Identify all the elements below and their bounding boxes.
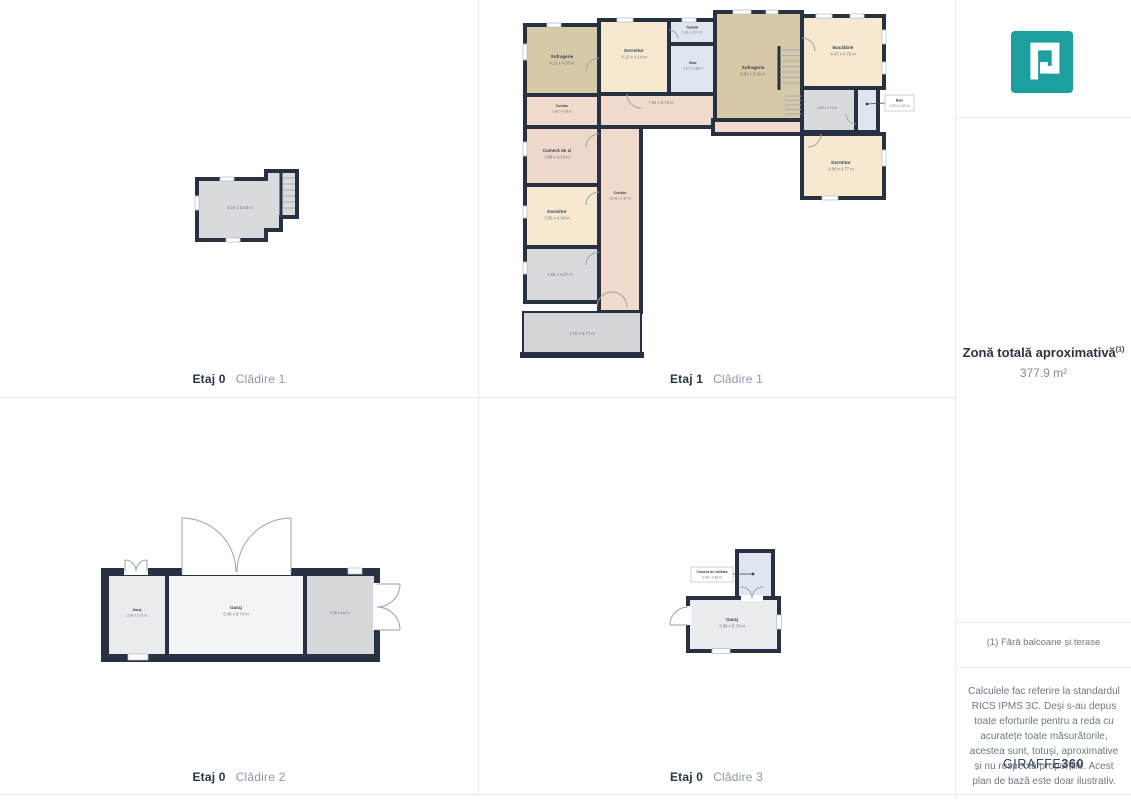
caption-floor: Etaj 1 <box>670 372 703 386</box>
total-area-text: Zonă totală aproximativă <box>963 345 1116 360</box>
caption-plan2: Etaj 1Clădire 1 <box>478 371 955 387</box>
room-name: Garaj <box>726 617 738 622</box>
room-utilitate <box>737 551 773 599</box>
room-name: Garaj <box>133 608 142 612</box>
room-dims: 7.94 x 3.73 m <box>648 100 674 105</box>
caption-plan4: Etaj 0Clădire 3 <box>478 769 955 785</box>
room-dims: 2.70 x 6.77 m <box>569 331 595 336</box>
room-name: Sufragerie <box>551 54 574 59</box>
room-name: Cameră de zi <box>543 148 571 153</box>
divider-sidebar-1 <box>955 117 1131 118</box>
divider-sidebar <box>955 0 956 800</box>
footnote: (1) Fără balcoane și terase <box>956 637 1131 648</box>
room-dims: 1.31 x 2.97 m <box>682 31 702 35</box>
disclaimer-text: Calculele fac referire la standardul RIC… <box>966 684 1122 789</box>
floorplan-etaj0-cladire2: Garaj 3.60 x 3.73 m Garaj 5.48 x 8.74 m … <box>95 505 405 670</box>
room-dims: 8.16 x 5.50 m <box>227 205 253 210</box>
caption-building: Clădire 2 <box>236 770 286 784</box>
caption-building: Clădire 1 <box>713 372 763 386</box>
room-dims: 5.38 x 4.42 m <box>330 611 350 615</box>
room-dims: 13.09 x 1.87 m <box>609 197 631 201</box>
room-dims: 2.89 x 2.21 m <box>817 106 837 110</box>
room-dims: 2.97 x 1.39 m <box>890 104 910 108</box>
room-hall <box>599 94 715 127</box>
room-hall-strip <box>713 120 802 134</box>
room-name: Coridor <box>614 191 627 195</box>
floorplan-etaj0-cladire3: Cameră de utilitate 2.08 x 2.82 m Garaj … <box>668 533 798 663</box>
room-baie-2 <box>856 88 878 132</box>
floorplan-etaj0-cladire1: 8.16 x 5.50 m <box>188 163 310 251</box>
room-name: Cameră de utilitate <box>696 570 727 574</box>
room-dims: 3.85 x 4.34 m <box>544 216 570 221</box>
room-name: Dormitor <box>624 48 644 53</box>
total-area-label: Zonă totală aproximativă(1) <box>956 345 1131 360</box>
room-name: Garaj <box>230 605 242 610</box>
giraffe360-logo-icon <box>1011 31 1073 98</box>
room-dims: 4.11 x 4.58 m <box>549 61 575 66</box>
caption-building: Clădire 1 <box>236 372 286 386</box>
room-dims: 4.47 x 4.79 m <box>830 52 856 57</box>
room-name: Coridor <box>556 104 569 108</box>
entry-double-door <box>124 560 148 575</box>
brand-bold: 360 <box>1061 757 1084 771</box>
caption-plan1: Etaj 0Clădire 1 <box>0 371 478 387</box>
room-name: Toaletă <box>686 26 698 30</box>
floorplan-page: 8.16 x 5.50 m Etaj 0Clădire 1 <box>0 0 1131 800</box>
divider-bottom <box>0 794 1131 795</box>
room-name: Sufragerie <box>742 65 765 70</box>
room-dims: 6.62 x 5.89 m <box>740 72 766 77</box>
caption-floor: Etaj 0 <box>192 372 225 386</box>
room-dims: 3.88 x 5.79 m <box>719 624 745 629</box>
entry-door <box>670 606 692 625</box>
room-name: Dormitor <box>831 160 851 165</box>
room-name: Baie <box>689 61 696 65</box>
room-name: Baie <box>896 99 903 103</box>
room-dims: 1.66 x 4.28 m <box>552 110 572 114</box>
total-area-footnote-marker: (1) <box>1116 347 1125 354</box>
room-name: Bucătărie <box>833 45 854 50</box>
room-gray-2 <box>802 88 856 132</box>
room-dims: 4.12 x 4.14 m <box>621 55 647 60</box>
divider-horizontal-main <box>0 397 956 398</box>
room-dims: 3.60 x 3.73 m <box>127 614 147 618</box>
garage-double-door <box>182 518 291 575</box>
caption-floor: Etaj 0 <box>192 770 225 784</box>
room-coridor-vertical <box>599 127 641 312</box>
side-double-door <box>373 583 400 630</box>
brand-regular: GIRAFFE <box>1003 757 1061 771</box>
room-right <box>305 574 377 656</box>
divider-sidebar-3 <box>955 667 1131 668</box>
room-name: Dormitor <box>547 209 567 214</box>
floorplan-etaj1-cladire1: Baie 2.97 x 1.39 m Sufragerie 4.11 x 4.5… <box>516 4 918 362</box>
brand-giraffe360: GIRAFFE360 <box>956 757 1131 771</box>
room-dims: 5.48 x 8.74 m <box>223 612 249 617</box>
room-dims: 2.47 x 2.88 m <box>683 67 703 71</box>
caption-building: Clădire 3 <box>713 770 763 784</box>
room-dims: 3.88 x 4.24 m <box>544 155 570 160</box>
caption-plan3: Etaj 0Clădire 2 <box>0 769 478 785</box>
divider-sidebar-2 <box>955 622 1131 623</box>
caption-floor: Etaj 0 <box>670 770 703 784</box>
total-area-value: 377.9 m² <box>956 366 1131 380</box>
room-dims: 4.00 x 4.77 m <box>828 167 854 172</box>
room-dims: 3.56 x 4.27 m <box>547 272 573 277</box>
room-dims: 2.08 x 2.82 m <box>702 576 722 580</box>
